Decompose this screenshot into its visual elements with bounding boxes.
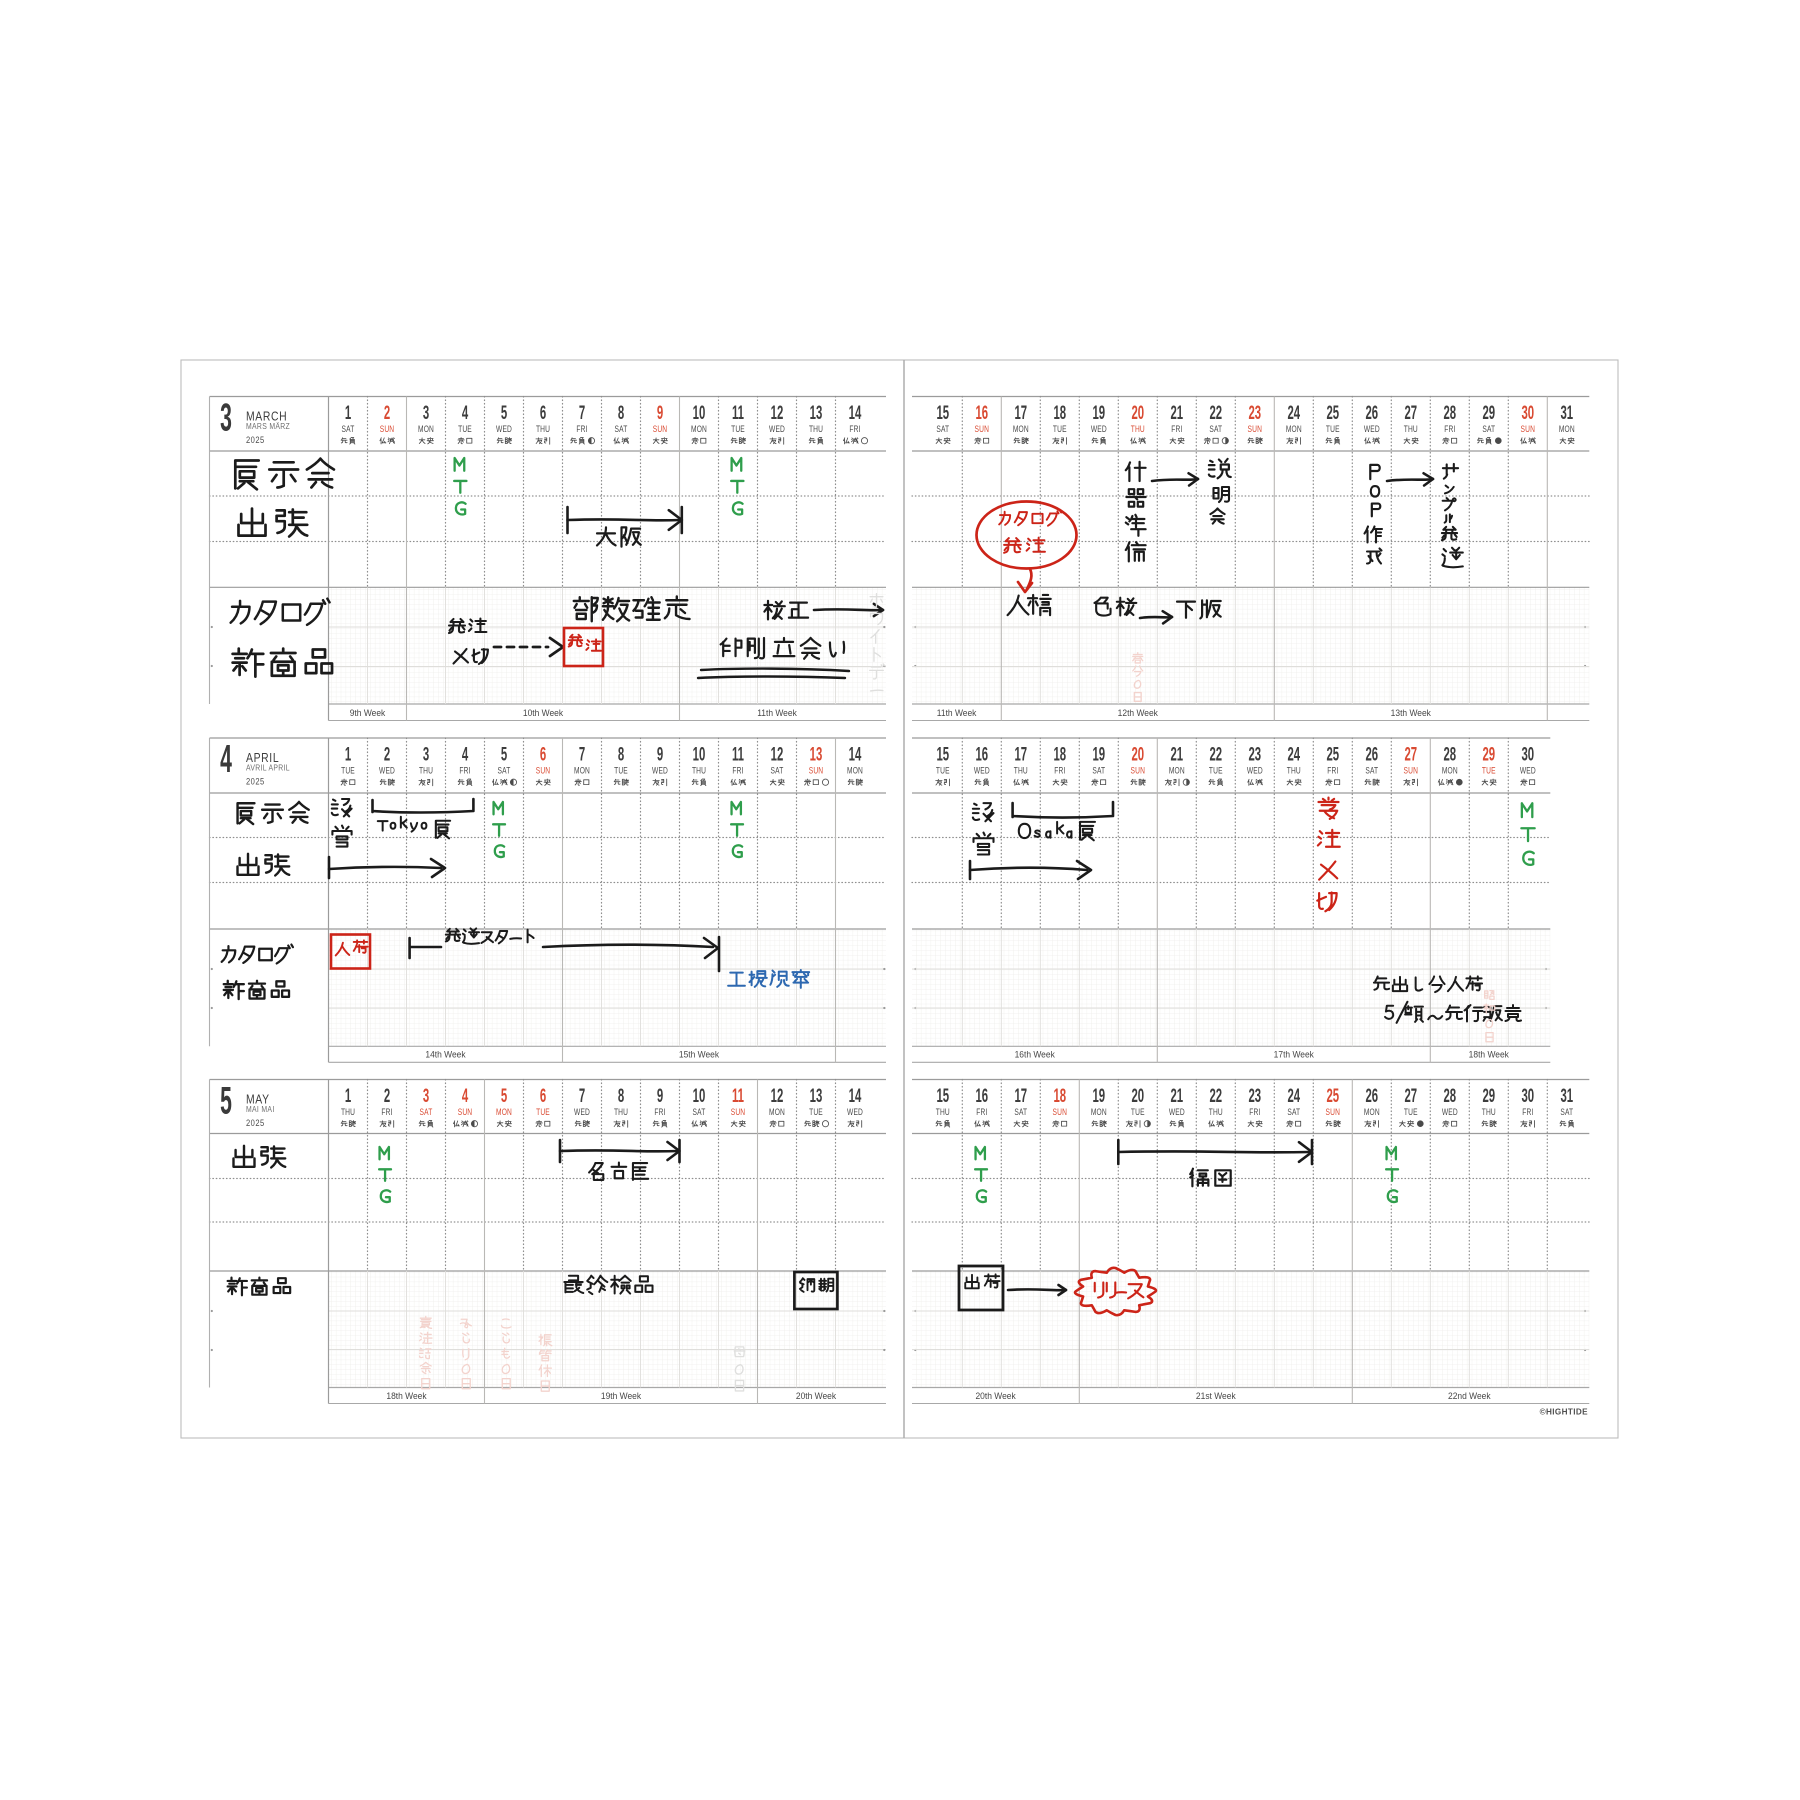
svg-text:21st Week: 21st Week <box>1196 1391 1236 1401</box>
svg-text:5: 5 <box>501 1085 507 1107</box>
svg-text:20: 20 <box>1131 402 1144 424</box>
svg-text:18: 18 <box>1053 402 1066 424</box>
svg-text:WED: WED <box>1364 424 1380 434</box>
svg-text:FRI: FRI <box>1444 424 1455 434</box>
svg-text:15th Week: 15th Week <box>679 1049 720 1059</box>
svg-text:23: 23 <box>1248 402 1261 424</box>
svg-text:9th Week: 9th Week <box>350 708 386 718</box>
svg-text:6: 6 <box>540 743 546 765</box>
svg-text:18th Week: 18th Week <box>386 1391 427 1401</box>
svg-text:FRI: FRI <box>1249 1107 1260 1117</box>
svg-text:TUE: TUE <box>1053 424 1067 434</box>
svg-text:SAT: SAT <box>342 424 355 434</box>
svg-text:28: 28 <box>1443 402 1456 424</box>
svg-text:8: 8 <box>618 743 624 765</box>
svg-text:TUE: TUE <box>809 1107 823 1117</box>
svg-text:11: 11 <box>732 1085 744 1107</box>
svg-text:14: 14 <box>849 1085 862 1107</box>
svg-text:SUN: SUN <box>809 766 824 776</box>
svg-text:TUE: TUE <box>1404 1107 1418 1117</box>
svg-text:SAT: SAT <box>1287 1107 1300 1117</box>
svg-text:1: 1 <box>345 743 351 765</box>
svg-text:26: 26 <box>1365 402 1378 424</box>
svg-text:3: 3 <box>423 402 429 424</box>
svg-text:5: 5 <box>220 1079 232 1122</box>
svg-text:TUE: TUE <box>341 766 355 776</box>
svg-text:10: 10 <box>693 402 706 424</box>
svg-text:5: 5 <box>501 743 507 765</box>
svg-text:SAT: SAT <box>1092 766 1105 776</box>
svg-text:SUN: SUN <box>536 766 551 776</box>
svg-text:TUE: TUE <box>1326 424 1340 434</box>
svg-text:11th Week: 11th Week <box>937 708 977 718</box>
svg-text:26: 26 <box>1365 1085 1378 1107</box>
svg-text:2025: 2025 <box>246 1117 265 1128</box>
svg-text:SAT: SAT <box>936 424 949 434</box>
svg-text:THU: THU <box>614 1107 628 1117</box>
svg-text:FRI: FRI <box>732 766 743 776</box>
svg-text:18th Week: 18th Week <box>1469 1049 1510 1059</box>
svg-text:SUN: SUN <box>1131 766 1146 776</box>
svg-text:FRI: FRI <box>654 1107 665 1117</box>
svg-text:SUN: SUN <box>1326 1107 1341 1117</box>
svg-text:23: 23 <box>1248 743 1261 765</box>
svg-text:THU: THU <box>1014 766 1028 776</box>
svg-text:SAT: SAT <box>498 766 511 776</box>
svg-text:4: 4 <box>462 1085 468 1107</box>
svg-text:11: 11 <box>732 402 744 424</box>
svg-text:19th Week: 19th Week <box>601 1391 642 1401</box>
svg-text:12th Week: 12th Week <box>1118 708 1159 718</box>
svg-text:WED: WED <box>1247 766 1263 776</box>
svg-text:30: 30 <box>1521 743 1534 765</box>
svg-text:THU: THU <box>536 424 550 434</box>
svg-text:THU: THU <box>936 1107 950 1117</box>
svg-text:18: 18 <box>1053 1085 1066 1107</box>
svg-text:TUE: TUE <box>1482 766 1496 776</box>
svg-text:21: 21 <box>1170 402 1183 424</box>
svg-text:29: 29 <box>1482 743 1495 765</box>
svg-text:12: 12 <box>771 402 784 424</box>
svg-text:MAI MAI: MAI MAI <box>246 1104 275 1114</box>
svg-text:THU: THU <box>1131 424 1145 434</box>
svg-text:8: 8 <box>618 1085 624 1107</box>
svg-text:31: 31 <box>1560 1085 1573 1107</box>
svg-text:FRI: FRI <box>459 766 470 776</box>
svg-text:THU: THU <box>1287 766 1301 776</box>
svg-text:23: 23 <box>1248 1085 1261 1107</box>
svg-text:FRI: FRI <box>976 1107 987 1117</box>
svg-text:SUN: SUN <box>1521 424 1536 434</box>
svg-text:19: 19 <box>1092 743 1105 765</box>
svg-text:13th Week: 13th Week <box>1391 708 1432 718</box>
svg-text:17: 17 <box>1014 402 1027 424</box>
svg-text:2: 2 <box>384 743 390 765</box>
svg-text:16: 16 <box>975 1085 988 1107</box>
svg-text:10th Week: 10th Week <box>523 708 564 718</box>
svg-text:26: 26 <box>1365 743 1378 765</box>
svg-text:24: 24 <box>1287 402 1300 424</box>
svg-text:13: 13 <box>810 402 823 424</box>
svg-text:MON: MON <box>1091 1107 1107 1117</box>
svg-text:22: 22 <box>1209 743 1222 765</box>
svg-text:TUE: TUE <box>1131 1107 1145 1117</box>
svg-text:20th Week: 20th Week <box>975 1391 1016 1401</box>
svg-text:THU: THU <box>1404 424 1418 434</box>
svg-text:27: 27 <box>1404 1085 1417 1107</box>
svg-text:MON: MON <box>1286 424 1302 434</box>
svg-text:14th Week: 14th Week <box>425 1049 466 1059</box>
svg-text:10: 10 <box>693 743 706 765</box>
svg-text:THU: THU <box>692 766 706 776</box>
svg-text:14: 14 <box>849 402 862 424</box>
svg-text:28: 28 <box>1443 1085 1456 1107</box>
svg-text:THU: THU <box>1209 1107 1223 1117</box>
svg-text:2: 2 <box>384 1085 390 1107</box>
svg-text:WED: WED <box>496 424 512 434</box>
svg-text:4: 4 <box>462 402 468 424</box>
svg-text:SAT: SAT <box>1014 1107 1027 1117</box>
svg-text:MON: MON <box>1013 424 1029 434</box>
svg-text:FRI: FRI <box>576 424 587 434</box>
svg-text:25: 25 <box>1326 402 1339 424</box>
svg-text:16: 16 <box>975 743 988 765</box>
svg-text:THU: THU <box>419 766 433 776</box>
svg-text:WED: WED <box>1091 424 1107 434</box>
svg-text:SAT: SAT <box>1365 766 1378 776</box>
svg-text:WED: WED <box>769 424 785 434</box>
svg-text:MARS MÄRZ: MARS MÄRZ <box>246 421 290 431</box>
svg-text:9: 9 <box>657 743 663 765</box>
svg-text:SUN: SUN <box>1248 424 1263 434</box>
svg-text:SAT: SAT <box>1482 424 1495 434</box>
svg-text:MON: MON <box>496 1107 512 1117</box>
svg-text:FRI: FRI <box>381 1107 392 1117</box>
svg-text:11th Week: 11th Week <box>757 708 797 718</box>
svg-text:SUN: SUN <box>731 1107 746 1117</box>
svg-text:29: 29 <box>1482 1085 1495 1107</box>
svg-text:16th Week: 16th Week <box>1015 1049 1056 1059</box>
svg-text:SUN: SUN <box>1404 766 1419 776</box>
svg-text:7: 7 <box>579 1085 585 1107</box>
svg-text:FRI: FRI <box>1171 424 1182 434</box>
svg-text:MON: MON <box>1169 766 1185 776</box>
svg-text:29: 29 <box>1482 402 1495 424</box>
svg-text:SUN: SUN <box>653 424 668 434</box>
svg-text:4: 4 <box>220 737 232 780</box>
svg-text:15: 15 <box>936 1085 949 1107</box>
svg-text:SAT: SAT <box>1209 424 1222 434</box>
svg-text:13: 13 <box>810 743 823 765</box>
svg-text:7: 7 <box>579 402 585 424</box>
svg-text:5: 5 <box>501 402 507 424</box>
svg-text:15: 15 <box>936 402 949 424</box>
svg-text:WED: WED <box>574 1107 590 1117</box>
svg-text:WED: WED <box>1442 1107 1458 1117</box>
svg-text:6: 6 <box>540 402 546 424</box>
svg-text:FRI: FRI <box>849 424 860 434</box>
svg-text:4: 4 <box>462 743 468 765</box>
svg-text:19: 19 <box>1092 402 1105 424</box>
svg-text:FRI: FRI <box>1327 766 1338 776</box>
svg-text:TUE: TUE <box>458 424 472 434</box>
svg-text:21: 21 <box>1170 743 1183 765</box>
svg-text:MON: MON <box>769 1107 785 1117</box>
svg-text:30: 30 <box>1521 1085 1534 1107</box>
svg-text:20: 20 <box>1131 1085 1144 1107</box>
svg-text:SAT: SAT <box>420 1107 433 1117</box>
svg-text:3: 3 <box>220 396 232 439</box>
svg-text:MON: MON <box>574 766 590 776</box>
svg-text:20: 20 <box>1131 743 1144 765</box>
svg-text:FRI: FRI <box>1054 766 1065 776</box>
svg-text:11: 11 <box>732 743 744 765</box>
svg-text:AVRIL APRIL: AVRIL APRIL <box>246 763 290 773</box>
svg-text:FRI: FRI <box>1522 1107 1533 1117</box>
svg-text:1: 1 <box>345 402 351 424</box>
svg-text:8: 8 <box>618 402 624 424</box>
svg-text:14: 14 <box>849 743 862 765</box>
svg-text:30: 30 <box>1521 402 1534 424</box>
svg-text:24: 24 <box>1287 1085 1300 1107</box>
svg-text:SUN: SUN <box>458 1107 473 1117</box>
svg-text:MON: MON <box>1559 424 1575 434</box>
svg-text:3: 3 <box>423 743 429 765</box>
svg-text:TUE: TUE <box>731 424 745 434</box>
svg-text:2025: 2025 <box>246 776 265 787</box>
svg-text:15: 15 <box>936 743 949 765</box>
svg-text:3: 3 <box>423 1085 429 1107</box>
svg-text:27: 27 <box>1404 743 1417 765</box>
svg-text:TUE: TUE <box>936 766 950 776</box>
svg-text:MON: MON <box>1364 1107 1380 1117</box>
svg-text:28: 28 <box>1443 743 1456 765</box>
svg-text:WED: WED <box>1520 766 1536 776</box>
svg-text:13: 13 <box>810 1085 823 1107</box>
svg-text:WED: WED <box>379 766 395 776</box>
svg-text:THU: THU <box>341 1107 355 1117</box>
svg-text:19: 19 <box>1092 1085 1105 1107</box>
svg-text:TUE: TUE <box>1209 766 1223 776</box>
svg-text:2: 2 <box>384 402 390 424</box>
svg-text:18: 18 <box>1053 743 1066 765</box>
svg-text:12: 12 <box>771 1085 784 1107</box>
svg-text:24: 24 <box>1287 743 1300 765</box>
svg-text:17th Week: 17th Week <box>1274 1049 1315 1059</box>
svg-text:1: 1 <box>345 1085 351 1107</box>
svg-text:9: 9 <box>657 1085 663 1107</box>
svg-text:MON: MON <box>418 424 434 434</box>
svg-text:25: 25 <box>1326 743 1339 765</box>
svg-text:WED: WED <box>1169 1107 1185 1117</box>
svg-text:SAT: SAT <box>771 766 784 776</box>
svg-text:22nd Week: 22nd Week <box>1448 1391 1491 1401</box>
svg-text:16: 16 <box>975 402 988 424</box>
svg-text:SUN: SUN <box>380 424 395 434</box>
svg-text:SUN: SUN <box>975 424 990 434</box>
svg-text:6: 6 <box>540 1085 546 1107</box>
svg-text:10: 10 <box>693 1085 706 1107</box>
svg-text:12: 12 <box>771 743 784 765</box>
svg-text:WED: WED <box>847 1107 863 1117</box>
svg-text:21: 21 <box>1170 1085 1183 1107</box>
svg-text:SUN: SUN <box>1053 1107 1068 1117</box>
svg-text:17: 17 <box>1014 1085 1027 1107</box>
svg-text:2025: 2025 <box>246 434 265 445</box>
svg-text:20th Week: 20th Week <box>796 1391 837 1401</box>
svg-text:WED: WED <box>974 766 990 776</box>
svg-text:MON: MON <box>1442 766 1458 776</box>
svg-text:22: 22 <box>1209 402 1222 424</box>
svg-text:TUE: TUE <box>614 766 628 776</box>
svg-text:MON: MON <box>847 766 863 776</box>
svg-text:27: 27 <box>1404 402 1417 424</box>
svg-text:31: 31 <box>1560 402 1573 424</box>
svg-text:THU: THU <box>809 424 823 434</box>
svg-text:25: 25 <box>1326 1085 1339 1107</box>
svg-text:SAT: SAT <box>693 1107 706 1117</box>
svg-text:SAT: SAT <box>615 424 628 434</box>
svg-text:THU: THU <box>1482 1107 1496 1117</box>
svg-text:WED: WED <box>652 766 668 776</box>
svg-text:SAT: SAT <box>1560 1107 1573 1117</box>
svg-text:9: 9 <box>657 402 663 424</box>
svg-text:©HIGHTIDE: ©HIGHTIDE <box>1540 1406 1588 1416</box>
svg-text:7: 7 <box>579 743 585 765</box>
svg-text:TUE: TUE <box>536 1107 550 1117</box>
svg-text:22: 22 <box>1209 1085 1222 1107</box>
svg-text:17: 17 <box>1014 743 1027 765</box>
svg-text:MON: MON <box>691 424 707 434</box>
